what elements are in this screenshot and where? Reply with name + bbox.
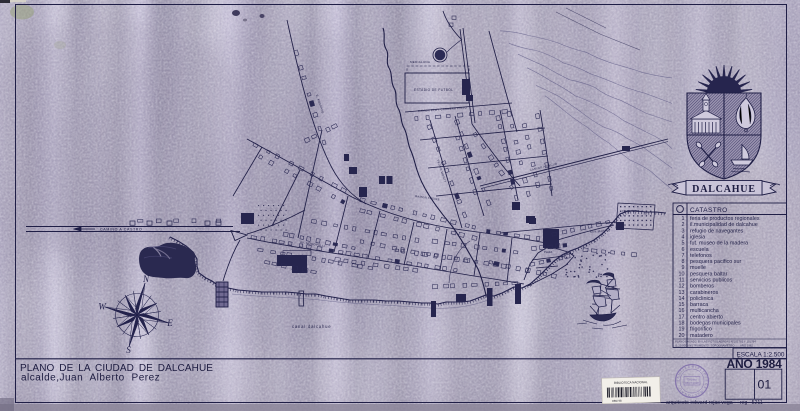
svg-text:fut. museo de la madera: fut. museo de la madera <box>690 241 748 247</box>
svg-text:18: 18 <box>679 321 685 327</box>
svg-text:pesquera pacifico sur: pesquera pacifico sur <box>690 259 741 265</box>
svg-text:multicancha: multicancha <box>690 308 719 314</box>
svg-text:2: 2 <box>682 222 685 228</box>
svg-text:8: 8 <box>682 259 685 265</box>
svg-text:bodegas municipales: bodegas municipales <box>690 321 741 327</box>
svg-text:il.municipalidad de dalcahue: il.municipalidad de dalcahue <box>690 222 758 228</box>
svg-text:barraca: barraca <box>690 302 708 308</box>
svg-text:E: E <box>166 318 173 328</box>
svg-text:CATASTRO: CATASTRO <box>690 207 728 214</box>
svg-text:canal dalcahue: canal dalcahue <box>292 324 331 329</box>
svg-text:N: N <box>142 274 150 284</box>
svg-text:centro abierto: centro abierto <box>690 314 723 320</box>
svg-text:MEDIALUNA: MEDIALUNA <box>410 60 430 64</box>
svg-text:13: 13 <box>679 290 685 296</box>
svg-text:iglesia: iglesia <box>690 235 705 241</box>
svg-text:telefonos: telefonos <box>690 253 712 259</box>
svg-text:CAMINO A CASTRO: CAMINO A CASTRO <box>100 228 142 232</box>
svg-text:bomberos: bomberos <box>690 284 714 290</box>
svg-text:pesquera baltar: pesquera baltar <box>690 271 728 277</box>
svg-text:alcalde,Juan Alberto Perez: alcalde,Juan Alberto Perez <box>21 372 160 383</box>
svg-text:9: 9 <box>682 265 685 271</box>
svg-text:19: 19 <box>679 327 685 333</box>
svg-text:S: S <box>126 345 131 355</box>
svg-text:frigorifico: frigorifico <box>690 327 712 333</box>
svg-text:1: 1 <box>682 216 685 222</box>
svg-text:(1:20.000) INSTRUMENTO: TOPOGR: (1:20.000) INSTRUMENTO: TOPOGRAMETRO AÑO… <box>675 342 753 347</box>
svg-text:20: 20 <box>679 333 685 339</box>
svg-text:feria de productos regionales: feria de productos regionales <box>690 216 760 222</box>
svg-text:refugio de navegantes: refugio de navegantes <box>690 228 744 234</box>
svg-text:11: 11 <box>679 278 685 284</box>
svg-text:16: 16 <box>679 308 685 314</box>
svg-text:servicios publicos: servicios publicos <box>690 278 733 284</box>
svg-text:Decreto: Decreto <box>687 377 697 381</box>
svg-text:muelle: muelle <box>690 265 706 271</box>
svg-text:3: 3 <box>682 228 685 234</box>
svg-text:5: 5 <box>682 241 685 247</box>
svg-text:12: 12 <box>679 284 685 290</box>
svg-text:matadero: matadero <box>690 333 713 339</box>
svg-text:889748: 889748 <box>612 399 622 403</box>
svg-text:PLAZA: PLAZA <box>544 250 552 254</box>
svg-text:CEMENTERIO: CEMENTERIO <box>622 209 639 213</box>
svg-text:4: 4 <box>682 235 685 241</box>
svg-text:policlinica: policlinica <box>690 296 713 302</box>
svg-text:10: 10 <box>679 271 685 277</box>
svg-text:carabineros: carabineros <box>690 290 718 296</box>
svg-text:14: 14 <box>679 296 685 302</box>
svg-text:6: 6 <box>682 247 685 253</box>
svg-text:01: 01 <box>758 378 772 392</box>
svg-text:escuela: escuela <box>690 247 709 253</box>
svg-text:arquitecto edward rojas veg: arquitecto edward rojas vega reg 5211 <box>666 400 763 406</box>
svg-text:DALCAHUE: DALCAHUE <box>692 184 756 195</box>
svg-text:ESTADIO DE FUTBOL: ESTADIO DE FUTBOL <box>414 88 453 92</box>
svg-text:7: 7 <box>682 253 685 259</box>
svg-text:17: 17 <box>679 314 685 320</box>
svg-text:15: 15 <box>679 302 685 308</box>
svg-text:05/07/1928: 05/07/1928 <box>685 381 699 385</box>
